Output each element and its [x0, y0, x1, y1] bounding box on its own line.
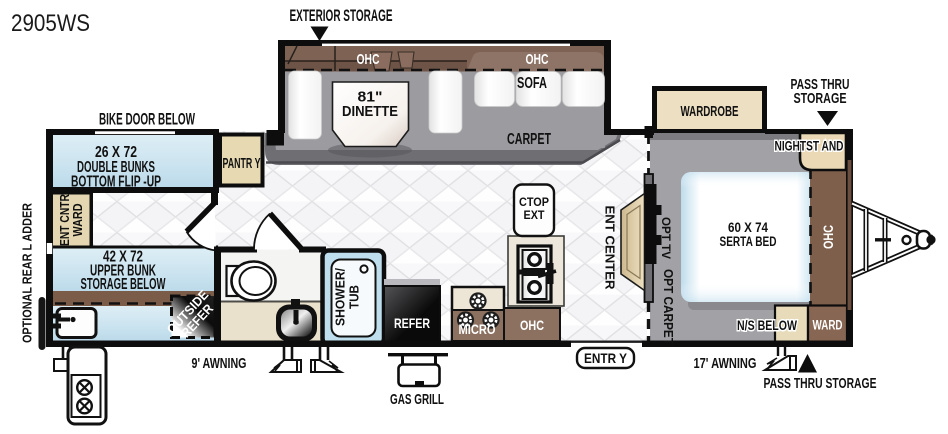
svg-text:WARD: WARD [813, 318, 843, 333]
svg-text:SOFA: SOFA [517, 75, 547, 92]
svg-text:OPT TV: OPT TV [659, 217, 673, 259]
svg-text:WARDROBE: WARDROBE [681, 103, 739, 120]
svg-text:60 X 74: 60 X 74 [728, 220, 768, 235]
svg-text:EXT: EXT [524, 208, 546, 222]
svg-text:PANTR Y: PANTR Y [223, 155, 261, 172]
svg-text:9' AWNING: 9' AWNING [192, 355, 247, 372]
svg-text:WARD: WARD [71, 204, 85, 237]
svg-text:BIKE DOOR BELOW: BIKE DOOR BELOW [99, 111, 195, 129]
svg-text:OHC: OHC [526, 51, 549, 68]
svg-text:NIGHTST AND: NIGHTST AND [775, 139, 844, 154]
svg-text:GAS GRILL: GAS GRILL [390, 391, 444, 408]
svg-text:EXTERIOR STORAGE: EXTERIOR STORAGE [290, 7, 393, 25]
svg-text:ENT CNTR: ENT CNTR [58, 194, 72, 246]
svg-text:STORAGE: STORAGE [794, 90, 847, 107]
svg-text:OPT CARPET: OPT CARPET [661, 269, 675, 345]
svg-text:2905WS: 2905WS [11, 10, 90, 37]
svg-text:ENT CENTER: ENT CENTER [603, 206, 618, 291]
svg-text:CARPET: CARPET [507, 131, 551, 148]
svg-text:OHC: OHC [520, 317, 544, 333]
svg-text:OHC: OHC [821, 225, 836, 249]
svg-text:STORAGE BELOW: STORAGE BELOW [81, 276, 166, 293]
svg-text:TUB: TUB [348, 285, 362, 309]
svg-text:OPTIONAL REAR L ADDER: OPTIONAL REAR L ADDER [20, 203, 35, 343]
svg-text:SERTA BED: SERTA BED [720, 234, 777, 249]
svg-text:OHC: OHC [357, 51, 380, 68]
svg-text:PASS THRU STORAGE: PASS THRU STORAGE [764, 375, 877, 392]
svg-text:17' AWNING: 17' AWNING [694, 355, 757, 372]
svg-text:ENTR Y: ENTR Y [584, 350, 628, 366]
svg-text:DINETTE: DINETTE [342, 103, 398, 120]
svg-text:BOTTOM FLIP -UP: BOTTOM FLIP -UP [71, 174, 161, 191]
svg-text:CTOP: CTOP [519, 195, 549, 209]
svg-text:SHOWER/: SHOWER/ [334, 267, 348, 326]
svg-text:MICRO: MICRO [459, 322, 496, 337]
svg-text:N/S BELOW: N/S BELOW [737, 318, 797, 333]
svg-text:REFER: REFER [394, 315, 430, 331]
